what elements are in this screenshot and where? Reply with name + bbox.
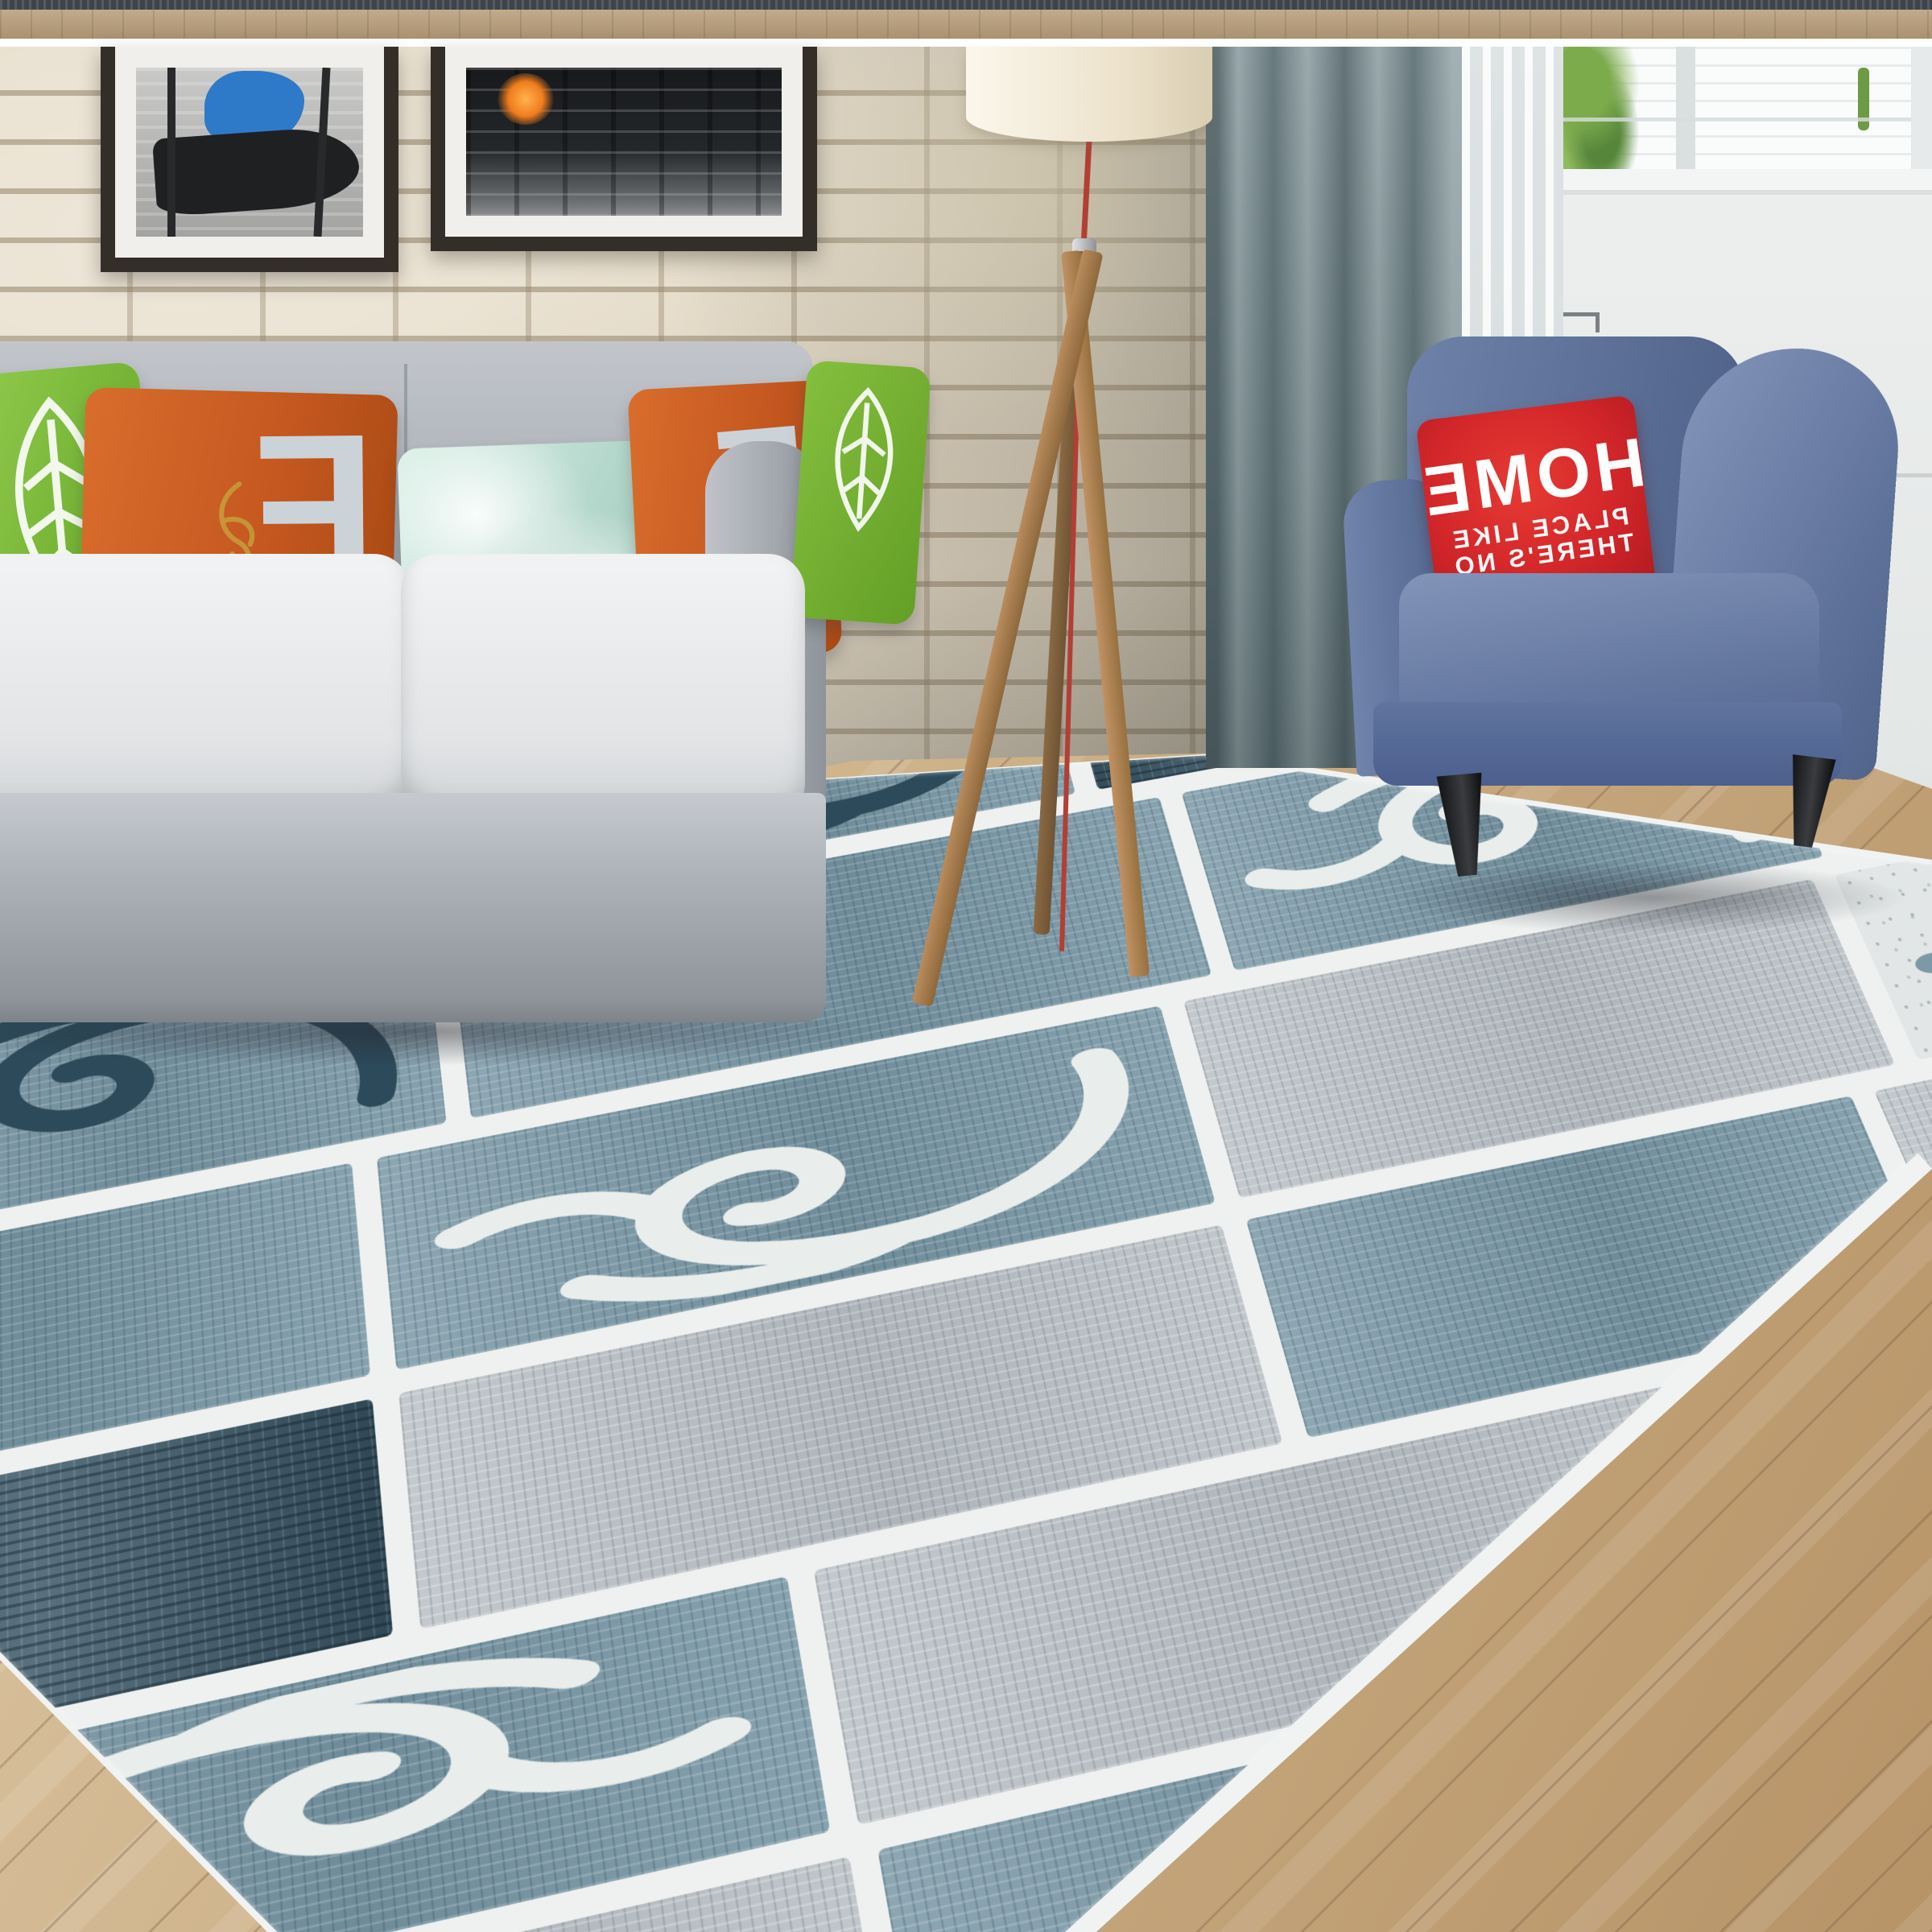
window-muntin (1562, 118, 1932, 122)
sofa-base (0, 793, 826, 1022)
leaf-print (808, 382, 912, 604)
sofa-seat-cushion (0, 554, 411, 819)
top-wood-floor-band (0, 10, 1932, 39)
green-leaf-pillow (790, 360, 931, 625)
lamp-shade (966, 47, 1212, 142)
top-carpet-edge-band (0, 0, 1932, 10)
living-room-photo: F F HOME PLACE LIKE THERE'S NO (0, 0, 1932, 1932)
water-reflection-photo (466, 68, 782, 216)
wall-mark (1560, 312, 1600, 332)
window (1562, 47, 1932, 169)
mirrored-quote-text: HOME PLACE LIKE THERE'S NO (1414, 425, 1657, 584)
gondola-hull (151, 125, 361, 217)
picture-frame-gondola (101, 47, 398, 272)
sofa-seat-cushion (401, 554, 805, 819)
orange-light-glow (497, 73, 554, 125)
window-frame-edge (1911, 47, 1932, 169)
window-sill (1562, 169, 1932, 195)
gondola-photo (136, 68, 363, 237)
window-muntin (1676, 47, 1695, 169)
mooring-post (167, 68, 175, 237)
picture-frame-water (431, 47, 817, 251)
armchair-base (1373, 702, 1842, 786)
window-plant-foliage (1562, 47, 1650, 169)
top-white-gap (0, 39, 1932, 47)
